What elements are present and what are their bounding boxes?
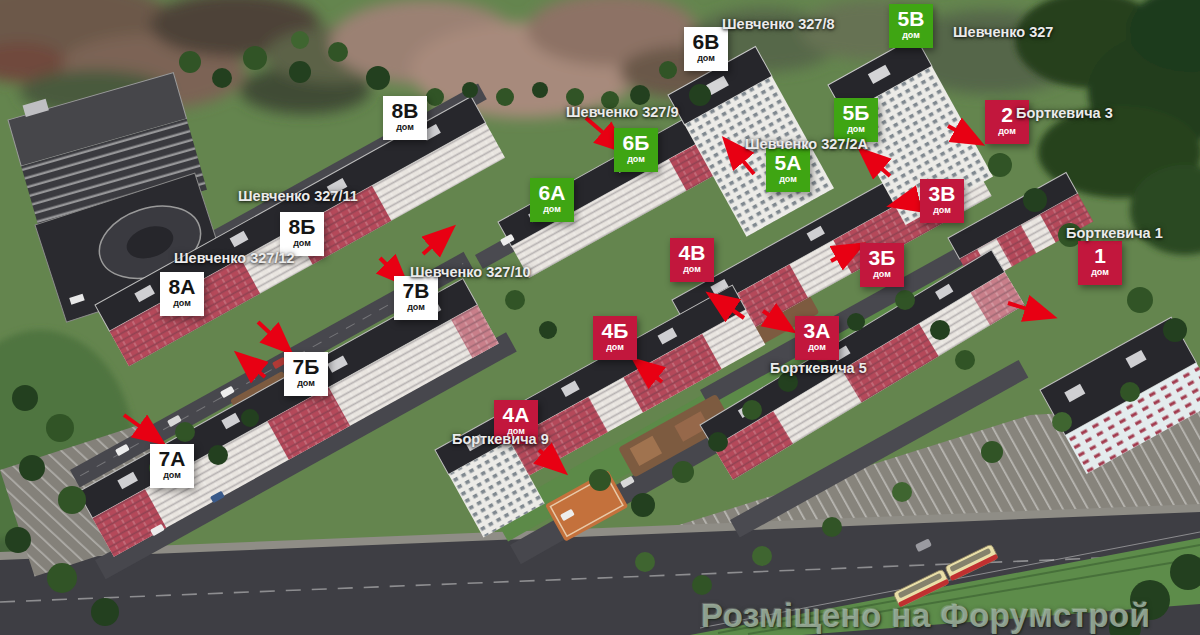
building-marker[interactable]: 7Бдом	[284, 352, 328, 396]
building-marker[interactable]: 8Адом	[160, 272, 204, 316]
building-sub-label: дом	[280, 238, 324, 248]
building-sub-label: дом	[150, 470, 194, 480]
building-marker[interactable]: 3Бдом	[860, 243, 904, 287]
building-marker[interactable]: 1дом	[1078, 241, 1122, 285]
street-label: Шевченко 327/2А	[745, 136, 868, 152]
watermark: Розміщено на Форумстрой	[701, 597, 1151, 635]
building-sub-label: дом	[593, 342, 637, 352]
building-code: 5А	[766, 151, 810, 174]
building-code: 3Б	[860, 246, 904, 269]
building-code: 1	[1078, 244, 1122, 267]
building-sub-label: дом	[1078, 267, 1122, 277]
building-code: 7А	[150, 447, 194, 470]
building-sub-label: дом	[160, 298, 204, 308]
building-code: 6В	[684, 30, 728, 53]
building-sub-label: дом	[766, 174, 810, 184]
labels-layer: 5Вдом6Вдом8Вдом5Бдом2дом6Бдом5Адом6Адом3…	[0, 0, 1200, 635]
building-code: 8Б	[280, 215, 324, 238]
building-code: 8В	[383, 99, 427, 122]
building-marker[interactable]: 6Бдом	[614, 128, 658, 172]
building-marker[interactable]: 7Адом	[150, 444, 194, 488]
building-sub-label: дом	[889, 30, 933, 40]
building-code: 4Б	[593, 319, 637, 342]
building-marker[interactable]: 6Вдом	[684, 27, 728, 71]
street-label: Борткевича 3	[1016, 105, 1113, 121]
building-code: 5Б	[834, 101, 878, 124]
street-label: Борткевича 5	[770, 360, 867, 376]
building-code: 4В	[670, 241, 714, 264]
street-label: Шевченко 327	[953, 24, 1053, 40]
building-sub-label: дом	[614, 154, 658, 164]
building-marker[interactable]: 3Вдом	[920, 179, 964, 223]
building-marker[interactable]: 4Бдом	[593, 316, 637, 360]
building-marker[interactable]: 4Вдом	[670, 238, 714, 282]
building-sub-label: дом	[394, 302, 438, 312]
building-code: 7В	[394, 279, 438, 302]
street-label: Шевченко 327/10	[410, 264, 531, 280]
site-plan: 5Вдом6Вдом8Вдом5Бдом2дом6Бдом5Адом6Адом3…	[0, 0, 1200, 635]
building-sub-label: дом	[670, 264, 714, 274]
street-label: Шевченко 327/9	[566, 104, 678, 120]
building-sub-label: дом	[920, 205, 964, 215]
building-code: 3В	[920, 182, 964, 205]
street-label: Шевченко 327/8	[722, 16, 834, 32]
building-code: 7Б	[284, 355, 328, 378]
building-marker[interactable]: 8Вдом	[383, 96, 427, 140]
building-sub-label: дом	[383, 122, 427, 132]
building-code: 6Б	[614, 131, 658, 154]
building-marker[interactable]: 3Адом	[795, 316, 839, 360]
building-marker[interactable]: 7Вдом	[394, 276, 438, 320]
street-label: Борткевича 9	[452, 431, 549, 447]
street-label: Борткевича 1	[1066, 225, 1163, 241]
building-marker[interactable]: 5Вдом	[889, 4, 933, 48]
building-sub-label: дом	[284, 378, 328, 388]
building-sub-label: дом	[684, 53, 728, 63]
building-code: 6А	[530, 181, 574, 204]
building-marker[interactable]: 5Адом	[766, 148, 810, 192]
building-sub-label: дом	[795, 342, 839, 352]
building-code: 3А	[795, 319, 839, 342]
street-label: Шевченко 327/12	[174, 250, 295, 266]
building-sub-label: дом	[985, 126, 1029, 136]
street-label: Шевченко 327/11	[238, 188, 358, 204]
building-sub-label: дом	[860, 269, 904, 279]
building-marker[interactable]: 6Адом	[530, 178, 574, 222]
building-code: 5В	[889, 7, 933, 30]
building-code: 4А	[494, 403, 538, 426]
building-sub-label: дом	[530, 204, 574, 214]
building-code: 8А	[160, 275, 204, 298]
building-sub-label: дом	[834, 124, 878, 134]
